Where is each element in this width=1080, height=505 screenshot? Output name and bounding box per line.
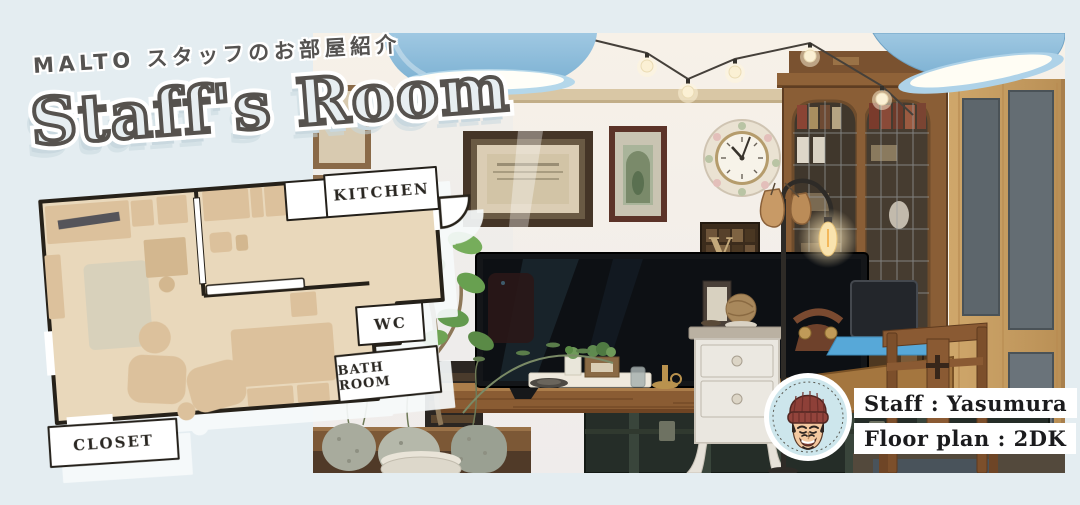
floor-plan-sink-box (283, 178, 328, 221)
banner: V (0, 0, 1080, 505)
door-arc (439, 196, 471, 228)
staff-name-label: Staff : Yasumura (854, 388, 1077, 418)
floor-plan-label-kitchen: KITCHEN (323, 166, 440, 218)
floor-plan-type-label: Floor plan : 2DK (854, 423, 1076, 454)
staff-avatar (763, 372, 853, 462)
small-frame (609, 126, 667, 222)
floor-plan-label-closet: CLOSET (47, 418, 179, 468)
wall-clock (704, 120, 780, 196)
floor-plan-label-wc: WC (355, 301, 426, 346)
floor-plan: KITCHEN WC BATH ROOM CLOSET (36, 164, 506, 482)
